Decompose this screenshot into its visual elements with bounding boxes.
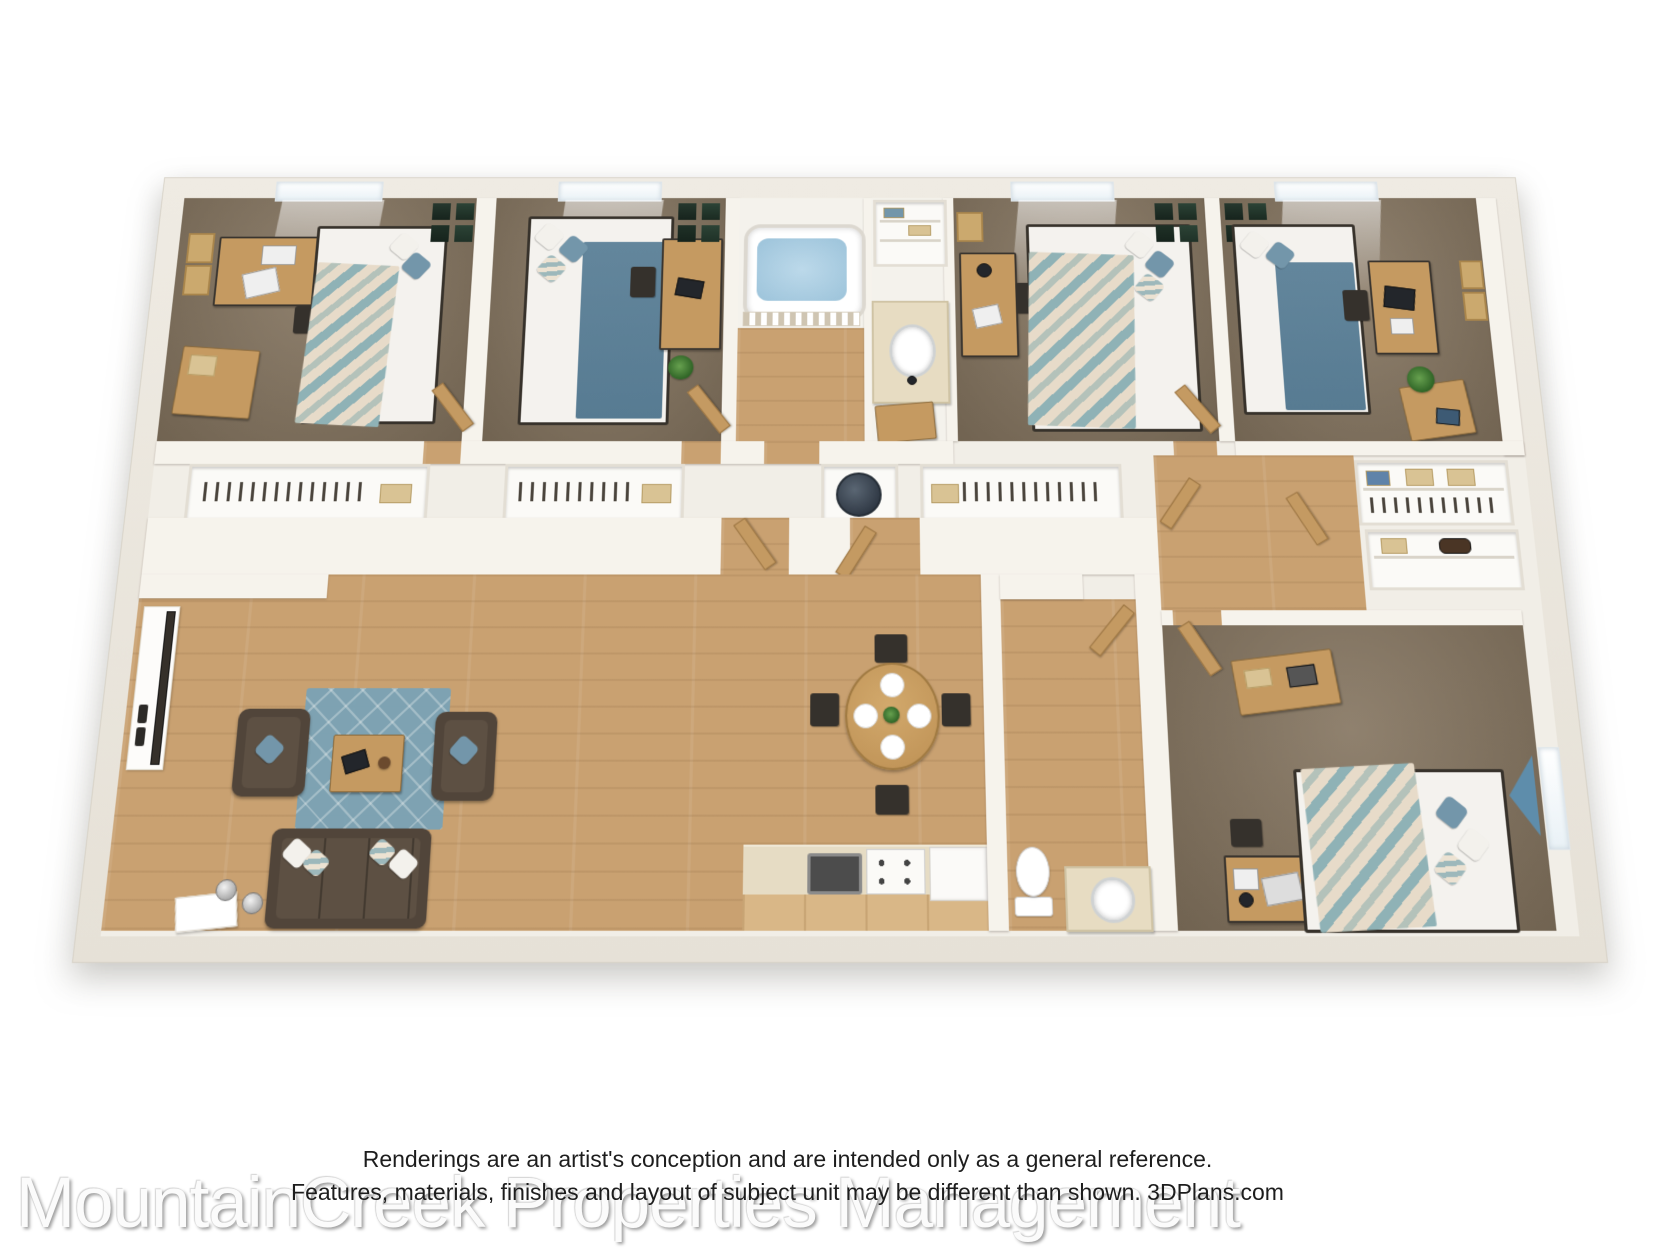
desk-bedroom-2 — [659, 238, 723, 350]
dining-chair-west — [810, 693, 839, 726]
closet-bedroom-2 — [502, 464, 685, 524]
corkboard-bedroom-3 — [956, 212, 983, 242]
towels — [883, 208, 904, 218]
tablet — [1286, 664, 1318, 688]
paper-sheet — [1390, 318, 1415, 334]
dresser-bedroom-1 — [171, 346, 260, 420]
pillow — [1433, 850, 1468, 887]
shoes — [137, 705, 148, 724]
window-bedroom-1 — [275, 182, 384, 202]
basket — [379, 484, 412, 503]
tablet — [675, 277, 705, 299]
picture-frames-bedroom-1 — [430, 203, 474, 242]
bed-bedroom-3 — [1026, 224, 1203, 431]
water-heater — [836, 473, 882, 517]
window-bedroom-4 — [1274, 182, 1379, 202]
towels — [908, 225, 931, 236]
desk-bedroom-4 — [1367, 261, 1439, 355]
shoes — [135, 727, 146, 746]
paper-sheet — [1233, 868, 1260, 890]
linen-closet — [873, 200, 948, 267]
coffee-table — [329, 735, 405, 793]
basket — [1405, 469, 1434, 486]
floorplan-3d — [72, 177, 1608, 963]
computer-monitor — [1383, 285, 1415, 310]
pillow — [1456, 826, 1491, 862]
dining-chair-north — [874, 634, 907, 662]
disclaimer-line-1: Renderings are an artist's conception an… — [0, 1146, 1575, 1173]
corkboard-bedroom-1 — [186, 233, 216, 263]
closet-bedroom-4 — [1354, 460, 1515, 525]
tablet — [341, 749, 370, 775]
basket — [641, 484, 671, 503]
faucet — [907, 376, 917, 385]
paper-sheet — [972, 304, 1003, 329]
hanging-clothes — [963, 482, 1106, 501]
doorway-bedroom-5 — [1173, 610, 1222, 625]
vanity-bathroom-1 — [872, 301, 951, 404]
desk-lamp — [1238, 892, 1254, 907]
doorway-bathroom-1 — [764, 441, 819, 464]
kitchen-sink — [807, 853, 862, 894]
closet-bedroom-1 — [183, 464, 430, 524]
centerpiece — [883, 707, 900, 724]
shelf — [880, 220, 941, 223]
bed-bedroom-1 — [300, 226, 449, 424]
doorway-bedroom-1 — [423, 441, 462, 464]
wall-bedroom-4-south — [1235, 441, 1525, 455]
picture-frames-bedroom-3 — [1154, 203, 1198, 242]
closet-bedroom-5 — [1365, 529, 1525, 590]
shelf — [1363, 488, 1504, 491]
hanging-clothes — [518, 482, 632, 501]
vanity-bathroom-2 — [1064, 866, 1153, 932]
folded-clothes — [1366, 471, 1391, 486]
sofa — [264, 829, 432, 929]
chair-bedroom-2 — [630, 267, 656, 297]
desk-bedroom-3 — [959, 253, 1019, 358]
blue-blanket — [1275, 262, 1366, 410]
basket — [1446, 469, 1475, 486]
bowl — [378, 757, 391, 770]
closet-bedroom-3 — [920, 464, 1124, 524]
chevron-duvet — [1300, 763, 1437, 933]
disclaimer-line-2: Features, materials, finishes and layout… — [0, 1179, 1575, 1206]
armchair-right — [431, 712, 498, 801]
toilet-tank — [1014, 897, 1053, 917]
refrigerator — [929, 847, 989, 901]
armchair-left — [231, 709, 311, 797]
tray — [1243, 667, 1273, 688]
sink-bathroom-2 — [1090, 877, 1136, 923]
plate — [853, 704, 878, 729]
shelf — [1374, 556, 1515, 559]
bed-bedroom-5 — [1293, 769, 1521, 933]
corkboard-bedroom-1 — [182, 265, 212, 295]
basket — [1380, 538, 1407, 554]
window-bedroom-3 — [1010, 182, 1114, 202]
dresser-bedroom-4 — [1399, 379, 1477, 442]
hall-table — [875, 401, 937, 443]
dining-table — [845, 663, 940, 771]
pillow — [1434, 795, 1469, 831]
wall-hall-north — [142, 518, 1160, 575]
bed-bedroom-2 — [517, 216, 674, 425]
dining-chair-south — [875, 785, 909, 815]
paper-sheet — [261, 245, 297, 265]
chair-bedroom-4 — [1342, 290, 1370, 321]
bath-water — [756, 238, 846, 300]
shower-curtain — [743, 312, 861, 327]
pillow — [535, 254, 567, 284]
plate — [880, 673, 905, 698]
corkboard-bedroom-4 — [1459, 261, 1485, 290]
bathroom-1-wood-floor — [736, 328, 865, 441]
tablet — [1436, 408, 1460, 426]
plate — [907, 704, 932, 729]
hanging-clothes — [203, 482, 367, 501]
tray — [187, 354, 218, 376]
shelf — [880, 239, 941, 242]
hanging-clothes — [1370, 497, 1501, 512]
doorway-bedroom-2 — [681, 441, 721, 464]
desk-lamp — [976, 263, 992, 277]
picture-frames-bedroom-2 — [677, 203, 720, 242]
wall-bath2-north — [1000, 574, 1083, 599]
bathtub — [743, 224, 866, 320]
basket — [931, 484, 959, 503]
screenshot-canvas: Renderings are an artist's conception an… — [0, 0, 1680, 1260]
bag — [1438, 538, 1472, 554]
window-bedroom-2 — [558, 182, 662, 202]
wall-bedrooms-south — [154, 441, 953, 464]
entry-wall-stub — [139, 574, 329, 598]
water-heater-closet — [821, 464, 899, 524]
plate — [880, 735, 905, 760]
stove — [866, 849, 925, 895]
chair-bedroom-5 — [1230, 819, 1263, 847]
laptop-icon — [1261, 872, 1305, 907]
laptop-icon — [242, 267, 280, 299]
corkboard-bedroom-4 — [1462, 292, 1488, 321]
chevron-duvet — [1028, 252, 1136, 429]
sink-bathroom-1 — [889, 324, 936, 377]
dining-chair-east — [941, 693, 970, 726]
desk-bedroom-1 — [212, 237, 324, 307]
